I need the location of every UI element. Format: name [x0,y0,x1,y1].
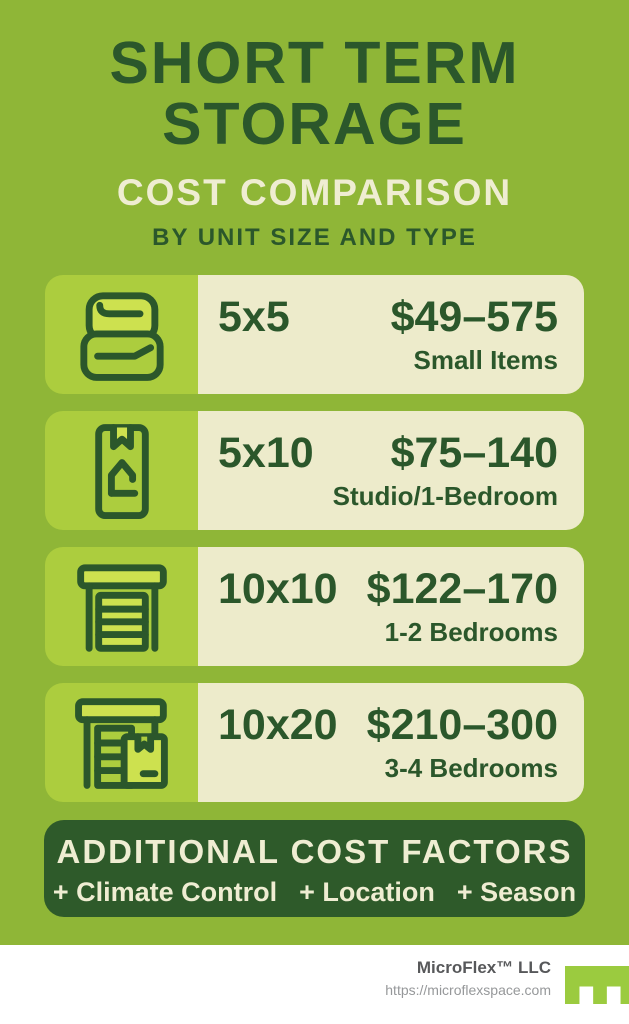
price-range: $75–140 [391,432,558,475]
table-row: 10x10 $122–170 1-2 Bedrooms [45,547,584,666]
factors-title: ADDITIONAL COST FACTORS [44,833,585,871]
folded-linens-icon [69,282,175,388]
unit-size: 5x10 [218,432,314,475]
price-range: $49–575 [391,296,558,339]
unit-size: 5x5 [218,296,290,339]
title-line-2: STORAGE [0,94,629,155]
moving-box-icon [69,418,175,524]
header: SHORT TERM STORAGE COST COMPARISON BY UN… [0,0,629,252]
size-price-line: 10x10 $122–170 [218,568,558,611]
unit-description: 1-2 Bedrooms [218,619,558,645]
storage-unit-box-icon [69,690,175,796]
subtitle: COST COMPARISON [0,172,629,214]
icon-tile [45,275,198,394]
factor-item: + Climate Control [53,877,277,908]
company-name: MicroFlex™ LLC [385,958,551,978]
icon-tile [45,411,198,530]
footer-text: MicroFlex™ LLC https://microflexspace.co… [385,958,551,998]
row-content: 10x10 $122–170 1-2 Bedrooms [198,547,584,666]
price-range: $210–300 [367,704,558,747]
table-row: 10x20 $210–300 3-4 Bedrooms [45,683,584,802]
comparison-rows: 5x5 $49–575 Small Items 5x10 $75–140 [45,275,584,819]
unit-description: 3-4 Bedrooms [218,755,558,781]
footer: MicroFlex™ LLC https://microflexspace.co… [0,945,629,1024]
table-row: 5x10 $75–140 Studio/1-Bedroom [45,411,584,530]
unit-size: 10x10 [218,568,338,611]
unit-description: Studio/1-Bedroom [218,483,558,509]
price-range: $122–170 [367,568,558,611]
row-content: 5x5 $49–575 Small Items [198,275,584,394]
microflex-logo-icon [565,966,629,1004]
icon-tile [45,683,198,802]
page-title: SHORT TERM STORAGE [0,33,629,155]
factors-items: + Climate Control + Location + Season [44,877,585,908]
unit-description: Small Items [218,347,558,373]
factor-item: + Location [299,877,435,908]
row-content: 10x20 $210–300 3-4 Bedrooms [198,683,584,802]
size-price-line: 5x10 $75–140 [218,432,558,475]
company-url: https://microflexspace.com [385,982,551,998]
unit-size: 10x20 [218,704,338,747]
icon-tile [45,547,198,666]
row-content: 5x10 $75–140 Studio/1-Bedroom [198,411,584,530]
additional-cost-factors-box: ADDITIONAL COST FACTORS + Climate Contro… [44,820,585,917]
table-row: 5x5 $49–575 Small Items [45,275,584,394]
title-line-1: SHORT TERM [0,33,629,94]
garage-door-icon [69,554,175,660]
infographic-poster: SHORT TERM STORAGE COST COMPARISON BY UN… [0,0,629,1024]
tagline: BY UNIT SIZE AND TYPE [0,224,629,252]
size-price-line: 10x20 $210–300 [218,704,558,747]
size-price-line: 5x5 $49–575 [218,296,558,339]
factor-item: + Season [457,877,576,908]
